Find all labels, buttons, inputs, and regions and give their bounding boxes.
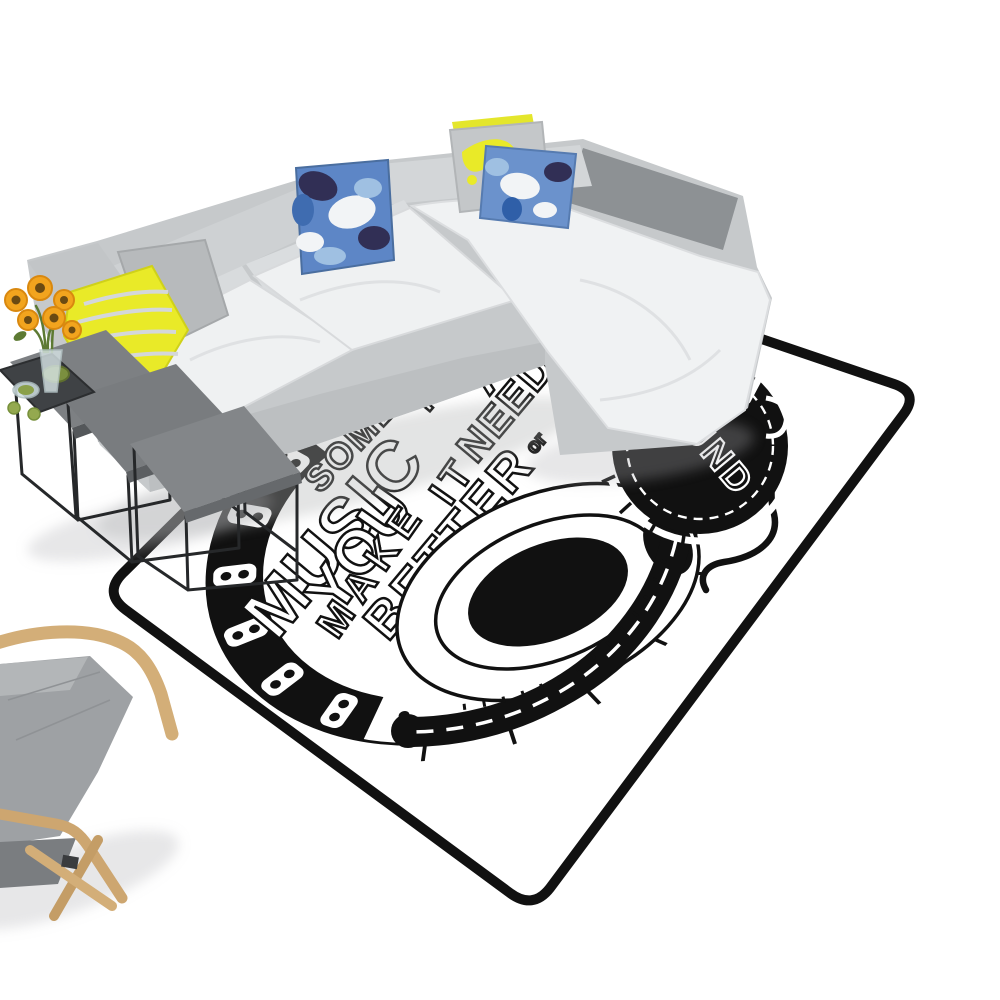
blue-pattern-pillow-2	[480, 146, 576, 228]
scene: SOMETIMES MUSIC IS ALL YOU NEED or FEE M…	[0, 0, 1000, 1000]
product-photo: SOMETIMES MUSIC IS ALL YOU NEED or FEE M…	[0, 0, 1000, 1000]
green-apple	[28, 408, 40, 420]
blue-pattern-pillow	[292, 160, 394, 274]
green-apple	[8, 402, 20, 414]
